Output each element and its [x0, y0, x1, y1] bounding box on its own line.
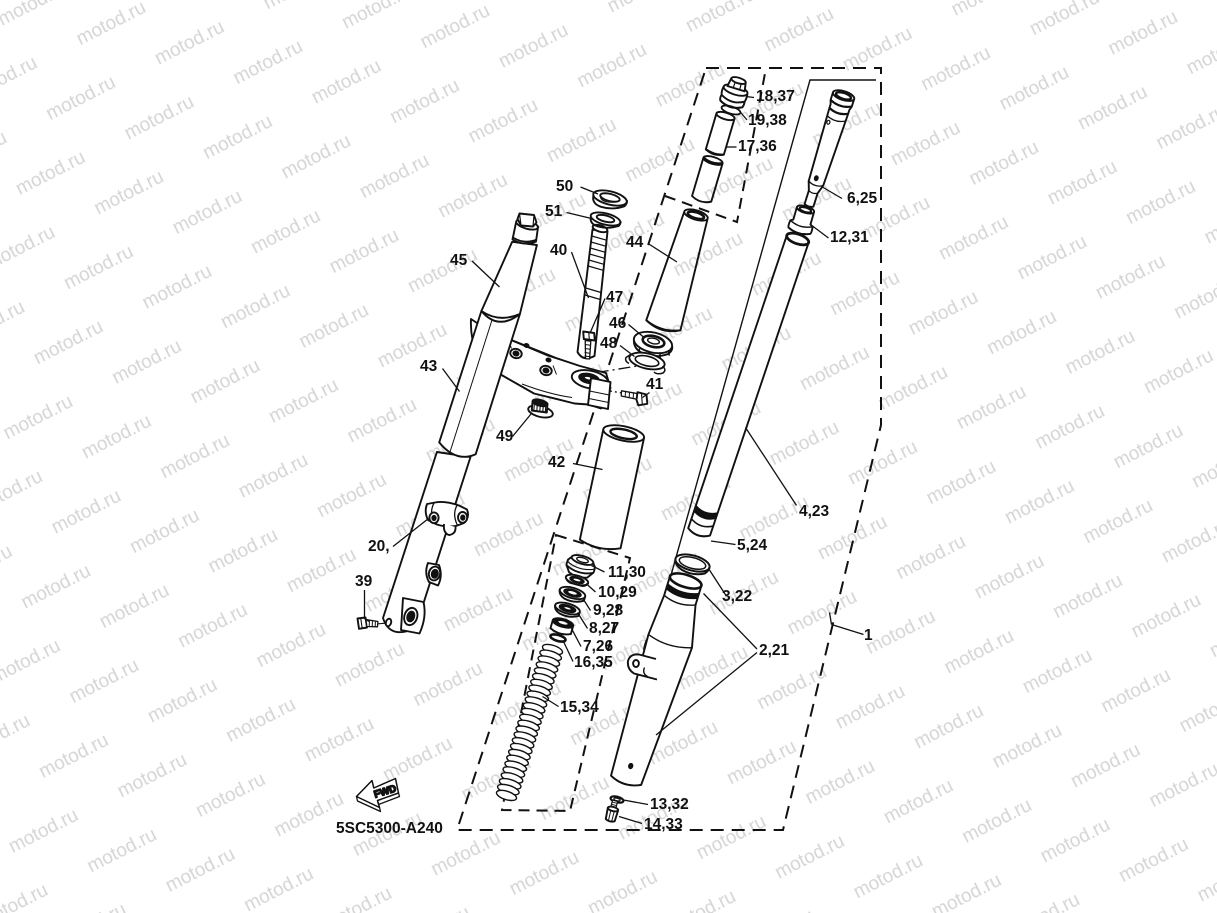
svg-text:1: 1 — [864, 627, 873, 644]
svg-text:7,26: 7,26 — [583, 638, 614, 655]
svg-text:8,27: 8,27 — [589, 620, 619, 637]
svg-text:10,29: 10,29 — [598, 584, 637, 601]
svg-text:9,28: 9,28 — [593, 602, 624, 619]
svg-text:41: 41 — [646, 376, 664, 393]
svg-text:2,21: 2,21 — [759, 642, 790, 659]
svg-text:46: 46 — [609, 315, 627, 332]
svg-text:40: 40 — [550, 242, 567, 259]
svg-text:13,32: 13,32 — [650, 796, 689, 813]
svg-text:4,23: 4,23 — [799, 503, 830, 520]
svg-text:39: 39 — [355, 573, 373, 590]
svg-text:14,33: 14,33 — [644, 816, 683, 833]
svg-text:6,25: 6,25 — [847, 190, 878, 207]
svg-text:48: 48 — [600, 335, 618, 352]
svg-text:44: 44 — [626, 234, 644, 251]
svg-text:18,37: 18,37 — [756, 88, 795, 105]
svg-text:20,: 20, — [368, 538, 390, 555]
svg-text:5,24: 5,24 — [737, 537, 768, 554]
svg-text:3,22: 3,22 — [722, 588, 752, 605]
svg-text:51: 51 — [545, 203, 563, 220]
svg-text:17,36: 17,36 — [738, 138, 777, 155]
svg-text:16,35: 16,35 — [574, 654, 613, 671]
svg-text:50: 50 — [556, 178, 573, 195]
svg-text:45: 45 — [450, 252, 468, 269]
svg-text:19,38: 19,38 — [748, 112, 787, 129]
svg-text:15,34: 15,34 — [560, 699, 599, 716]
svg-text:43: 43 — [420, 358, 438, 375]
svg-text:49: 49 — [496, 428, 514, 445]
svg-text:42: 42 — [548, 454, 565, 471]
svg-text:47: 47 — [606, 289, 623, 306]
svg-text:12,31: 12,31 — [830, 229, 869, 246]
svg-text:11,30: 11,30 — [608, 564, 646, 581]
svg-text:5SC5300-A240: 5SC5300-A240 — [336, 820, 443, 837]
